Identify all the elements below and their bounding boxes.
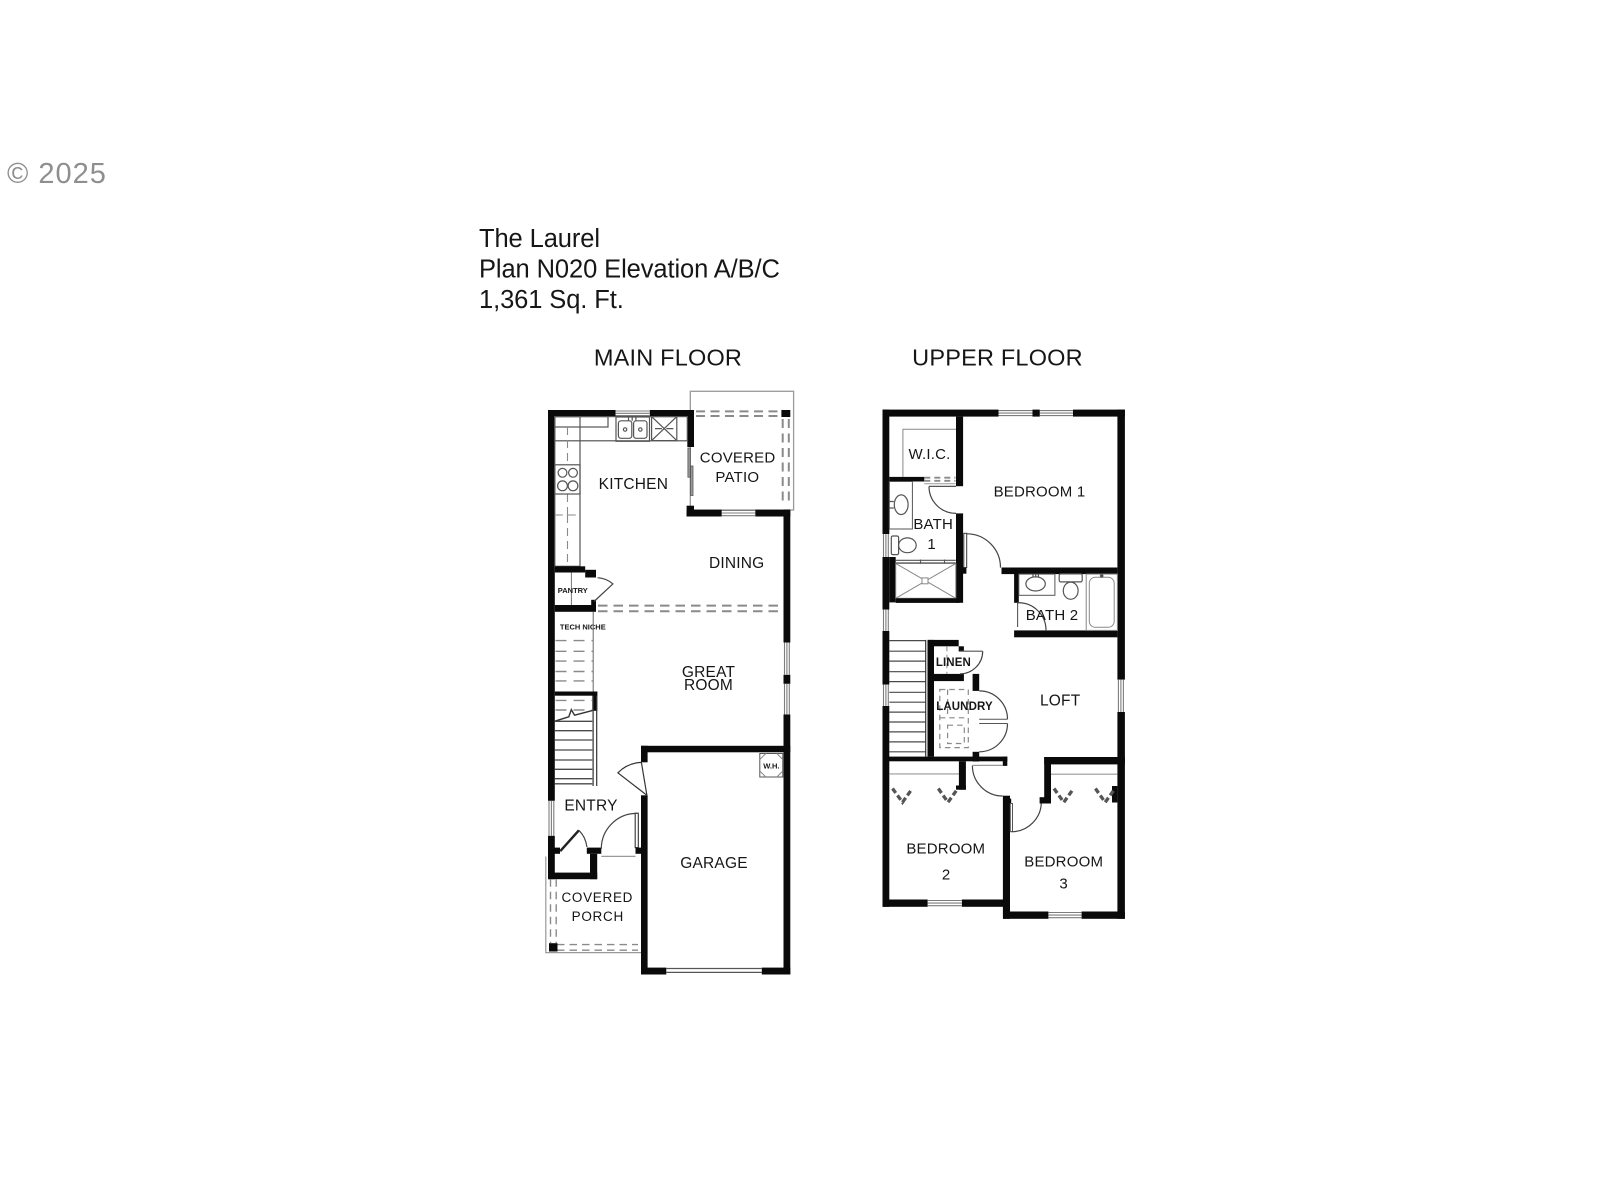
svg-text:LINEN: LINEN xyxy=(936,657,971,669)
svg-text:1: 1 xyxy=(927,536,936,553)
svg-text:GARAGE: GARAGE xyxy=(680,855,748,872)
svg-text:TECH NICHE: TECH NICHE xyxy=(560,623,606,632)
svg-text:COVERED: COVERED xyxy=(561,890,633,905)
svg-text:PATIO: PATIO xyxy=(715,469,759,486)
svg-text:3: 3 xyxy=(1059,875,1068,892)
svg-text:ROOM: ROOM xyxy=(684,677,733,694)
svg-text:KITCHEN: KITCHEN xyxy=(599,476,668,493)
svg-text:1,361 Sq. Ft.: 1,361 Sq. Ft. xyxy=(479,286,624,314)
svg-text:Plan N020 Elevation A/B/C: Plan N020 Elevation A/B/C xyxy=(479,256,780,284)
svg-text:MAIN FLOOR: MAIN FLOOR xyxy=(594,345,742,371)
svg-text:LAUNDRY: LAUNDRY xyxy=(936,701,993,713)
svg-text:PORCH: PORCH xyxy=(572,909,624,924)
svg-text:W.I.C.: W.I.C. xyxy=(908,446,950,463)
svg-text:UPPER FLOOR: UPPER FLOOR xyxy=(912,345,1083,371)
svg-text:W.H.: W.H. xyxy=(763,762,779,771)
svg-text:BATH 2: BATH 2 xyxy=(1026,607,1079,624)
svg-text:BEDROOM 1: BEDROOM 1 xyxy=(994,483,1086,500)
svg-text:BEDROOM: BEDROOM xyxy=(1024,854,1103,871)
svg-text:BEDROOM: BEDROOM xyxy=(906,840,985,857)
svg-text:BATH: BATH xyxy=(913,516,953,533)
svg-text:© 2025: © 2025 xyxy=(7,158,107,190)
svg-text:The Laurel: The Laurel xyxy=(479,225,600,253)
svg-text:COVERED: COVERED xyxy=(700,450,776,467)
svg-text:PANTRY: PANTRY xyxy=(558,586,588,595)
svg-text:2: 2 xyxy=(942,867,951,884)
svg-text:DINING: DINING xyxy=(709,555,764,572)
svg-text:ENTRY: ENTRY xyxy=(564,797,617,814)
svg-text:LOFT: LOFT xyxy=(1040,693,1081,710)
